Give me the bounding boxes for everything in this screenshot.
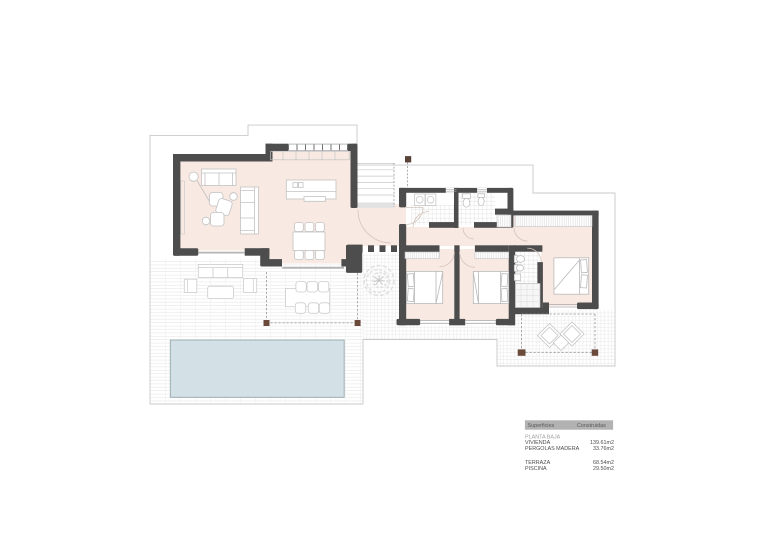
svg-text:PISCINA: PISCINA [525,466,547,472]
svg-text:33.76m2: 33.76m2 [593,446,614,452]
svg-text:VIVIENDA: VIVIENDA [525,440,551,446]
svg-text:29.50m2: 29.50m2 [593,466,614,472]
svg-text:PERGOLAS MADERA: PERGOLAS MADERA [525,446,580,452]
svg-text:139.61m2: 139.61m2 [590,440,614,446]
svg-text:Superficies: Superficies [528,423,555,429]
svg-text:Construidas: Construidas [577,423,606,429]
